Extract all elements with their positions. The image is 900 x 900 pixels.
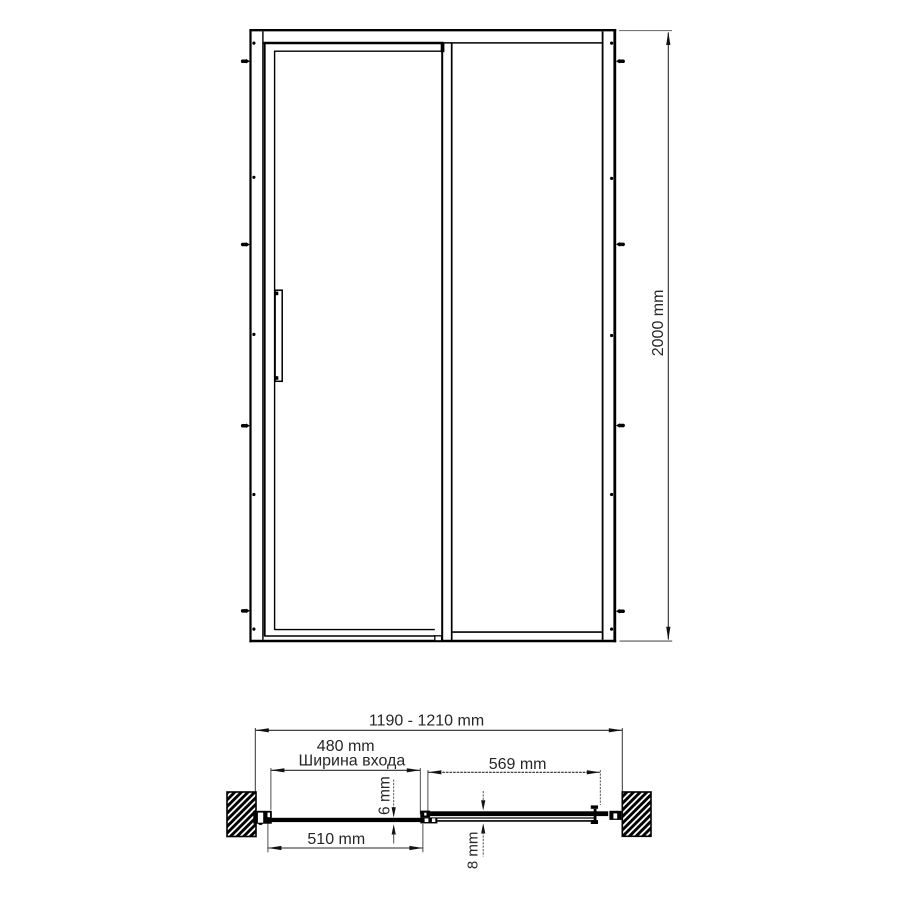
svg-text:6 mm: 6 mm — [376, 776, 393, 815]
svg-text:1190 - 1210 mm: 1190 - 1210 mm — [369, 713, 484, 730]
svg-text:Ширина входа: Ширина входа — [299, 752, 406, 769]
svg-text:8 mm: 8 mm — [465, 832, 482, 870]
svg-text:510 mm: 510 mm — [307, 831, 365, 848]
svg-text:569 mm: 569 mm — [489, 756, 547, 773]
svg-text:2000 mm: 2000 mm — [650, 290, 667, 357]
